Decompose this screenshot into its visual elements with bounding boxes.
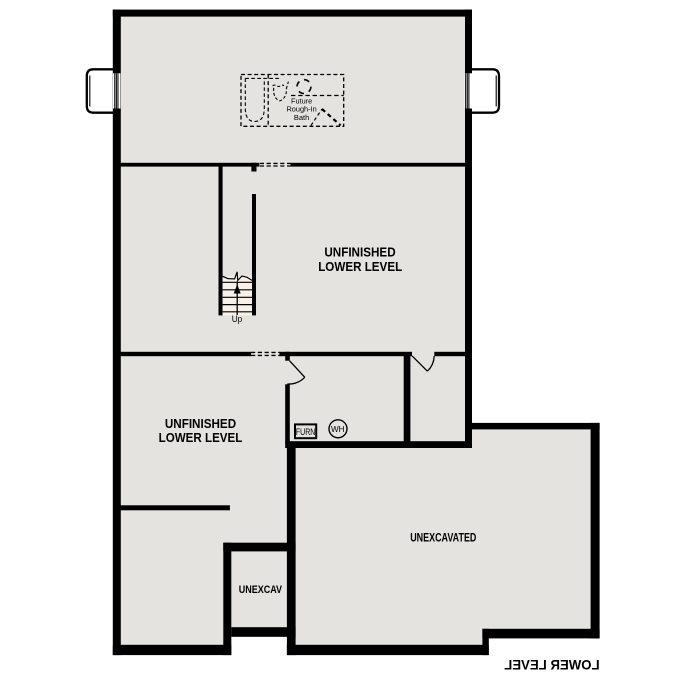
svg-text:UNFINISHED: UNFINISHED [165,417,236,431]
svg-text:UNEXCAV: UNEXCAV [239,584,283,596]
svg-text:LOWER LEVEL: LOWER LEVEL [159,431,243,445]
svg-text:UNFINISHED: UNFINISHED [324,246,395,260]
svg-text:WH: WH [331,424,345,434]
svg-text:Up: Up [232,314,243,324]
svg-text:LOWER LEVEL: LOWER LEVEL [318,260,402,274]
svg-text:Bath: Bath [294,113,309,122]
svg-text:LOWER LEVEL: LOWER LEVEL [504,657,600,673]
svg-text:FURN: FURN [296,427,316,438]
svg-text:UNEXCAVATED: UNEXCAVATED [410,533,476,545]
